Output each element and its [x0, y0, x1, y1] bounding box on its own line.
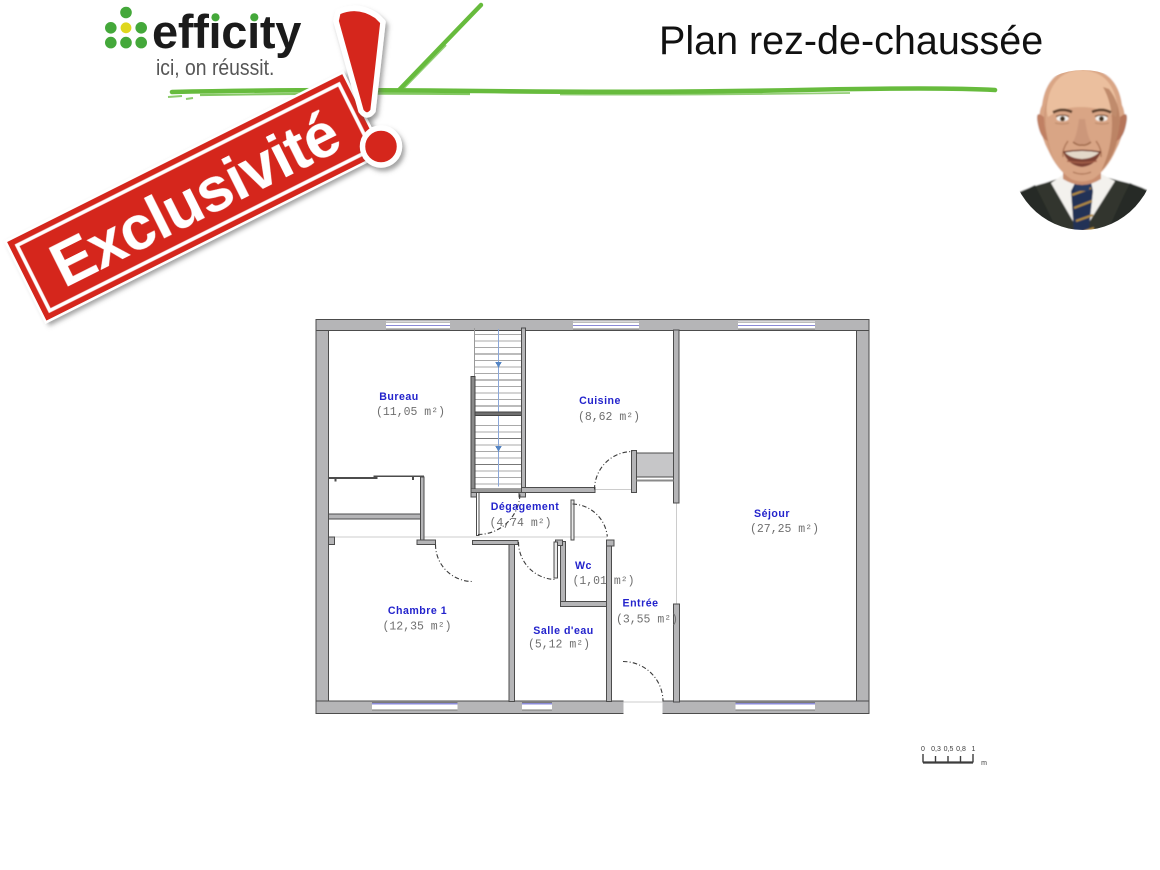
svg-text:(3,55 m²): (3,55 m²)	[616, 614, 678, 627]
svg-text:(5,12 m²): (5,12 m²)	[528, 639, 590, 652]
svg-text:Cuisine: Cuisine	[579, 395, 621, 407]
svg-text:Salle d'eau: Salle d'eau	[533, 625, 593, 637]
svg-text:(1,01 m²): (1,01 m²)	[572, 575, 634, 588]
svg-text:(27,25 m²): (27,25 m²)	[750, 523, 819, 536]
svg-text:(8,62 m²): (8,62 m²)	[578, 411, 640, 424]
svg-text:0,3: 0,3	[931, 746, 941, 753]
svg-text:0,8: 0,8	[956, 746, 966, 753]
svg-text:1: 1	[972, 746, 976, 753]
svg-text:(11,05 m²): (11,05 m²)	[376, 406, 445, 419]
svg-text:Chambre 1: Chambre 1	[388, 605, 447, 617]
svg-text:Dégagement: Dégagement	[491, 501, 560, 513]
svg-text:0: 0	[921, 746, 925, 753]
svg-text:0,5: 0,5	[944, 746, 954, 753]
svg-text:Séjour: Séjour	[754, 508, 790, 520]
svg-text:(12,35 m²): (12,35 m²)	[382, 621, 451, 634]
svg-text:(4,74 m²): (4,74 m²)	[489, 517, 551, 530]
svg-text:Bureau: Bureau	[379, 391, 419, 403]
svg-text:Entrée: Entrée	[623, 598, 659, 610]
svg-text:m: m	[981, 760, 987, 767]
svg-text:Wc: Wc	[575, 560, 592, 572]
